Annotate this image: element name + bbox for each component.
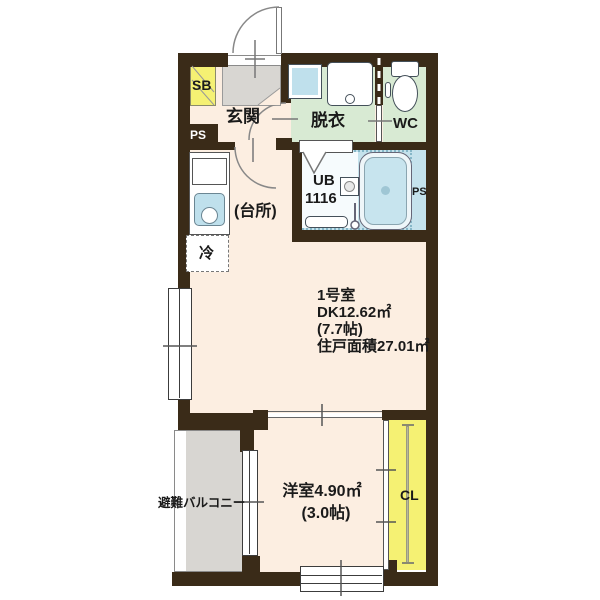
western-room-tatami-label: (3.0帖) xyxy=(302,506,351,522)
wall-hall-dk-block xyxy=(276,138,292,150)
closet-door-line xyxy=(383,420,389,570)
bottom-window-rail2 xyxy=(301,583,382,584)
dk-west-partition xyxy=(268,411,382,418)
unit-bath-label: UB xyxy=(313,173,335,188)
toilet-armrest xyxy=(385,82,391,98)
wall-dk-balcony xyxy=(178,413,268,430)
refrigerator-label: 冷 xyxy=(199,246,214,261)
washer-drain xyxy=(345,94,355,104)
shoe-box-label: SB xyxy=(192,78,211,92)
wall-balcony-window-stub-top xyxy=(240,428,254,452)
wall-ub-bottom xyxy=(292,230,426,242)
balcony-window-mullion xyxy=(249,451,250,554)
western-room-area-label: 洋室4.90㎡ xyxy=(282,484,361,500)
bathtub-drain xyxy=(381,186,390,195)
pipe-space-left-label: PS xyxy=(190,129,206,141)
closet-pole-cap-bottom xyxy=(402,562,414,564)
closet-label: CL xyxy=(400,488,419,502)
wall-right xyxy=(426,53,438,586)
wall-closet-top xyxy=(382,410,426,420)
closet-pole-cap-top xyxy=(402,424,414,426)
floor-plan: SB PS 玄関 脱衣 WC UB 1116 PS (台所) 冷 1号室 DK1… xyxy=(0,0,600,600)
western-room-bottom-window xyxy=(300,566,384,592)
entrance-door-leaf xyxy=(276,7,282,54)
bath-counter-circle xyxy=(344,181,355,192)
kitchen-stove xyxy=(192,158,227,185)
kitchen-label: (台所) xyxy=(234,204,277,220)
kitchen-sink-drain xyxy=(201,207,218,224)
dk-left-window-mullion xyxy=(179,289,180,398)
dk-left-window xyxy=(168,288,192,400)
entrance-door-arc xyxy=(233,7,279,53)
entrance-threshold xyxy=(228,55,281,66)
wc-sliding-door xyxy=(376,105,382,142)
unit-bath-size-label: 1116 xyxy=(305,191,337,206)
entrance-label: 玄関 xyxy=(226,108,260,125)
balcony-label: 避難バルコニー xyxy=(158,497,245,510)
pipe-space-right-label: PS xyxy=(412,187,427,198)
dressing-room-label: 脱衣 xyxy=(311,112,345,129)
bottom-window-rail1 xyxy=(301,575,382,576)
wall-wc-left xyxy=(375,53,383,105)
toilet-label: WC xyxy=(393,116,418,131)
toilet-bowl xyxy=(392,75,418,112)
bath-step-bar xyxy=(305,216,348,228)
vanity-basin xyxy=(292,68,318,95)
wall-ub-left xyxy=(292,142,302,232)
wall-balcony-window-stub-bottom xyxy=(242,556,260,572)
unit-bath-door-bar xyxy=(299,140,353,153)
